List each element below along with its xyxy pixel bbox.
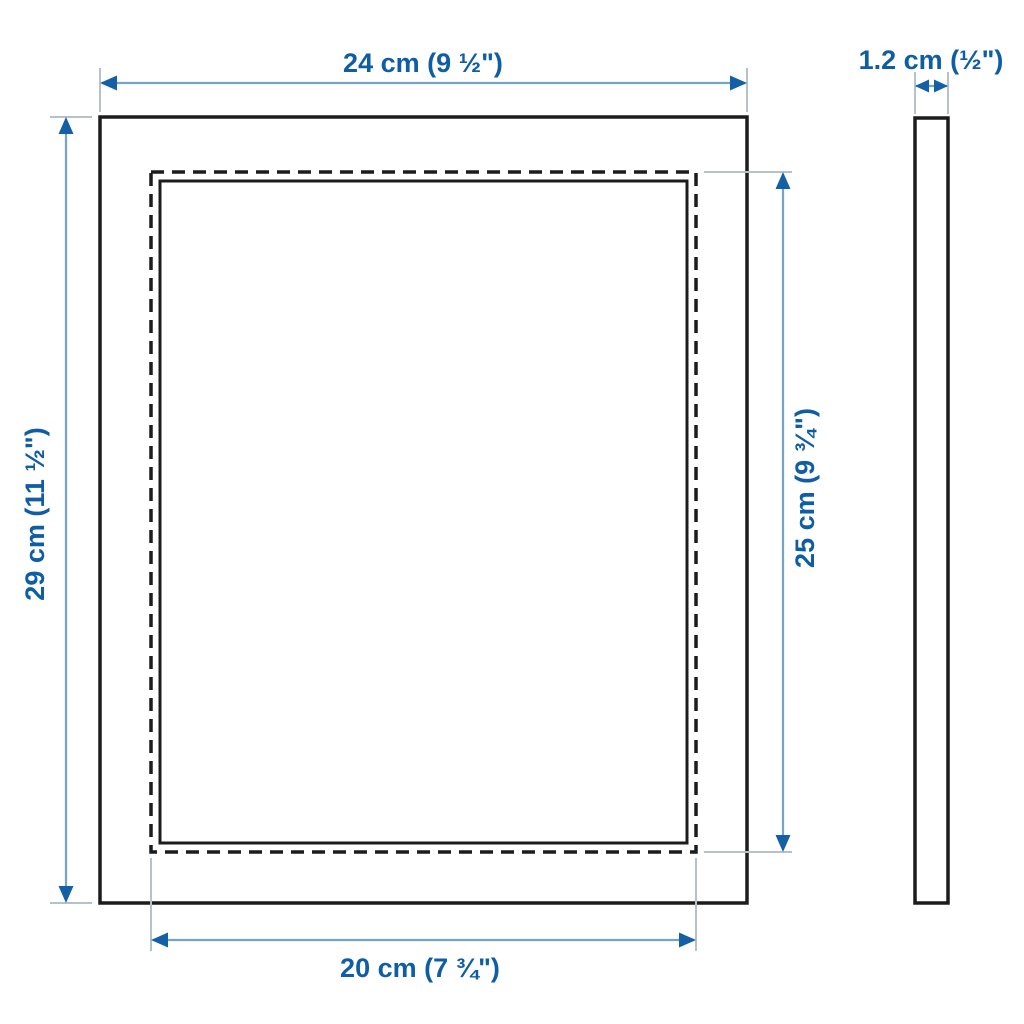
dimension-diagram-canvas: 24 cm (9 ½") 1.2 cm (½") 29 cm (11 ½") bbox=[0, 0, 1024, 1024]
picture-width-label: 20 cm (7 ¾") bbox=[340, 953, 500, 983]
frame-side-view bbox=[915, 118, 948, 903]
dimension-outer-height: 29 cm (11 ½") bbox=[20, 117, 92, 903]
picture-height-label: 25 cm (9 ¾") bbox=[790, 408, 820, 568]
arrowhead-up-icon bbox=[776, 172, 791, 189]
outer-height-label: 29 cm (11 ½") bbox=[20, 427, 50, 600]
arrowhead-left-icon bbox=[100, 76, 117, 91]
dimension-outer-width: 24 cm (9 ½") bbox=[100, 48, 747, 112]
arrowhead-right-icon bbox=[730, 76, 747, 91]
dimension-thickness: 1.2 cm (½") bbox=[859, 45, 1004, 114]
frame-side-profile bbox=[915, 118, 948, 903]
arrowhead-down-icon bbox=[59, 886, 74, 903]
arrowhead-left-icon bbox=[915, 80, 929, 93]
frame-front-view bbox=[100, 117, 747, 903]
arrowhead-down-icon bbox=[776, 835, 791, 852]
outer-width-label: 24 cm (9 ½") bbox=[343, 48, 503, 78]
arrowhead-up-icon bbox=[59, 117, 74, 134]
thickness-label: 1.2 cm (½") bbox=[859, 45, 1004, 75]
arrowhead-left-icon bbox=[151, 933, 168, 948]
arrowhead-right-icon bbox=[679, 933, 696, 948]
arrowhead-right-icon bbox=[934, 80, 948, 93]
frame-outer-edge bbox=[100, 117, 747, 903]
dimension-diagram: 24 cm (9 ½") 1.2 cm (½") 29 cm (11 ½") bbox=[0, 0, 1024, 1024]
